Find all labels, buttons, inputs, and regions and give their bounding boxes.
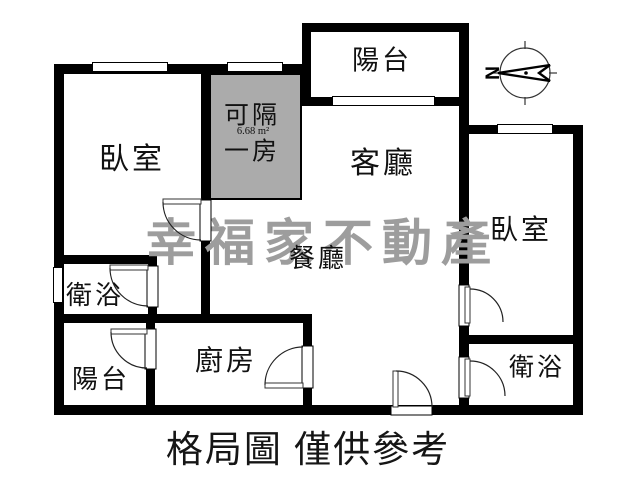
door-arc-kitchen: [265, 347, 303, 385]
door-arc-entrance: [396, 371, 432, 407]
room-label-bedroom-right: 臥室: [490, 217, 552, 245]
door-arc-bedroom-left: [163, 202, 201, 240]
room-label-partition-line1: 可隔: [224, 104, 280, 129]
room-label-bath-right: 衛浴: [509, 356, 565, 381]
compass-needle: [498, 65, 550, 81]
compass: N: [481, 41, 558, 105]
compass-center-dot: [524, 71, 528, 75]
floor-plan: 幸福家不動產: [0, 0, 640, 480]
room-label-bedroom-left: 臥室: [99, 145, 165, 175]
door-opening-kitchen: [302, 346, 313, 388]
door-openings: [145, 200, 469, 415]
door-arc-bath-right: [470, 361, 505, 396]
caption: 格局圖 僅供參考: [166, 419, 450, 473]
door-opening-bedroom-left: [200, 200, 211, 241]
room-label-dining: 餐廳: [289, 246, 347, 272]
door-opening-bath-left: [147, 266, 158, 307]
room-label-living: 客廳: [350, 149, 416, 179]
door-arc-bedroom-right: [470, 289, 503, 322]
door-leaf-entrance: [393, 371, 398, 407]
room-label-partition-area: 6.68 m²: [237, 127, 269, 138]
room-label-partition-line2: 一房: [224, 140, 280, 165]
room-label-balcony-bottom: 陽台: [72, 367, 130, 393]
door-opening-balcony-bottom: [145, 329, 156, 369]
door-leaves: [110, 199, 470, 407]
door-leaf-bath-left: [110, 265, 148, 270]
room-label-bath-left: 衛浴: [66, 283, 124, 309]
door-arc-balcony-bottom: [111, 332, 147, 368]
compass-north-label: N: [481, 66, 502, 80]
door-leaf-bedroom-left: [163, 199, 201, 204]
door-leaf-balcony-bottom: [111, 329, 147, 334]
door-leaf-kitchen: [265, 383, 303, 388]
door-leaf-bath-right: [465, 359, 470, 396]
room-label-kitchen: 廚房: [195, 348, 257, 376]
door-leaf-bedroom-right: [465, 287, 470, 323]
room-label-balcony-top: 陽台: [352, 48, 412, 75]
